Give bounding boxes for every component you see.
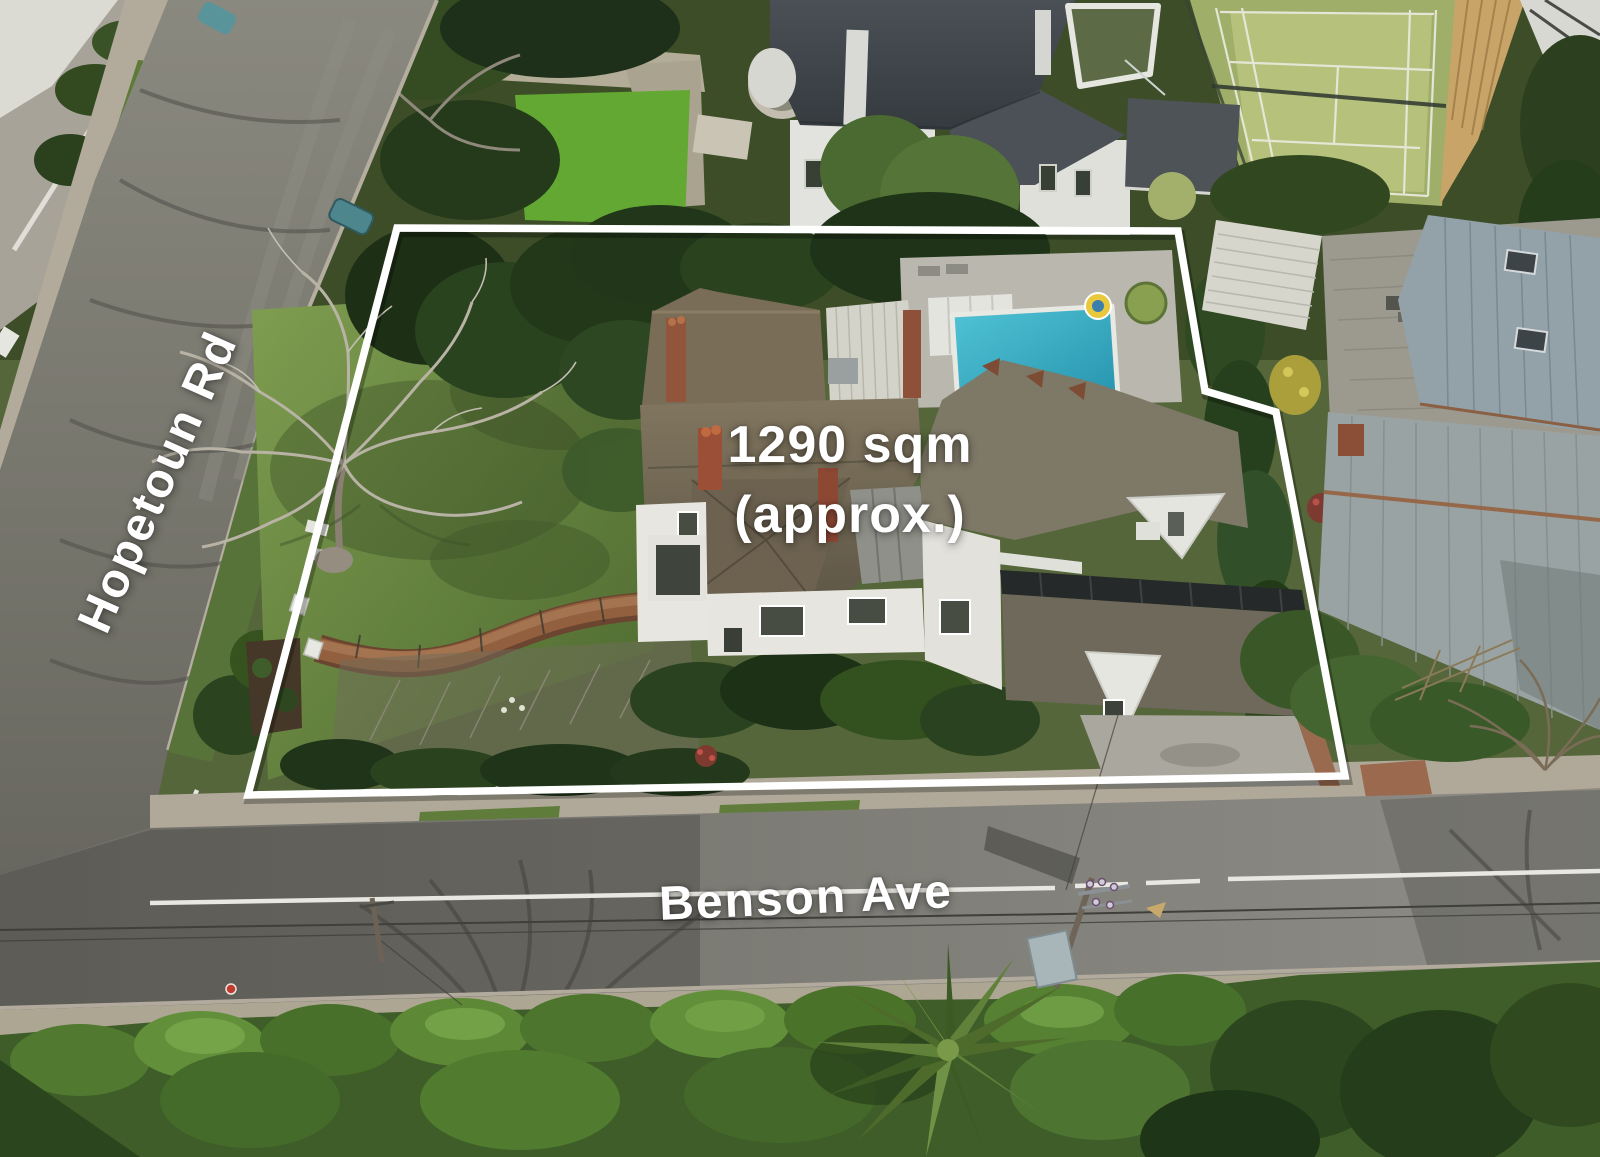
aerial-property-photo: Hopetoun Rd 1290 sqm (approx.) Benson Av… [0,0,1600,1157]
round-bush [1126,283,1166,323]
yellow-shrub [1269,355,1321,415]
curved-bay [748,48,796,108]
lot-area-value: 1290 sqm [727,410,972,480]
pale-bush [1148,172,1196,220]
boulder [315,547,353,573]
gable-louver [1168,512,1184,536]
dormer-ac-unit [1136,522,1160,540]
lot-area-approx: (approx.) [727,480,972,550]
parking-sign [226,984,236,994]
stone-balustrade [693,114,753,159]
lot-area-label: 1290 sqm (approx.) [727,410,972,550]
skylight-2 [1515,328,1547,352]
brick-chimney-neighbor [1338,424,1364,456]
skylight [1505,250,1537,274]
aerial-scene [0,0,1600,1157]
roof-ac-unit [828,358,858,384]
tree-shadow-west [0,815,700,1012]
chimney-terracotta-2 [903,310,921,398]
lap-pool [1068,6,1158,86]
mansion-chimney [843,30,868,126]
brick-chimney [698,428,722,490]
front-window [760,606,804,636]
brick-crossover [1360,760,1432,798]
chimney-terracotta [666,318,686,402]
